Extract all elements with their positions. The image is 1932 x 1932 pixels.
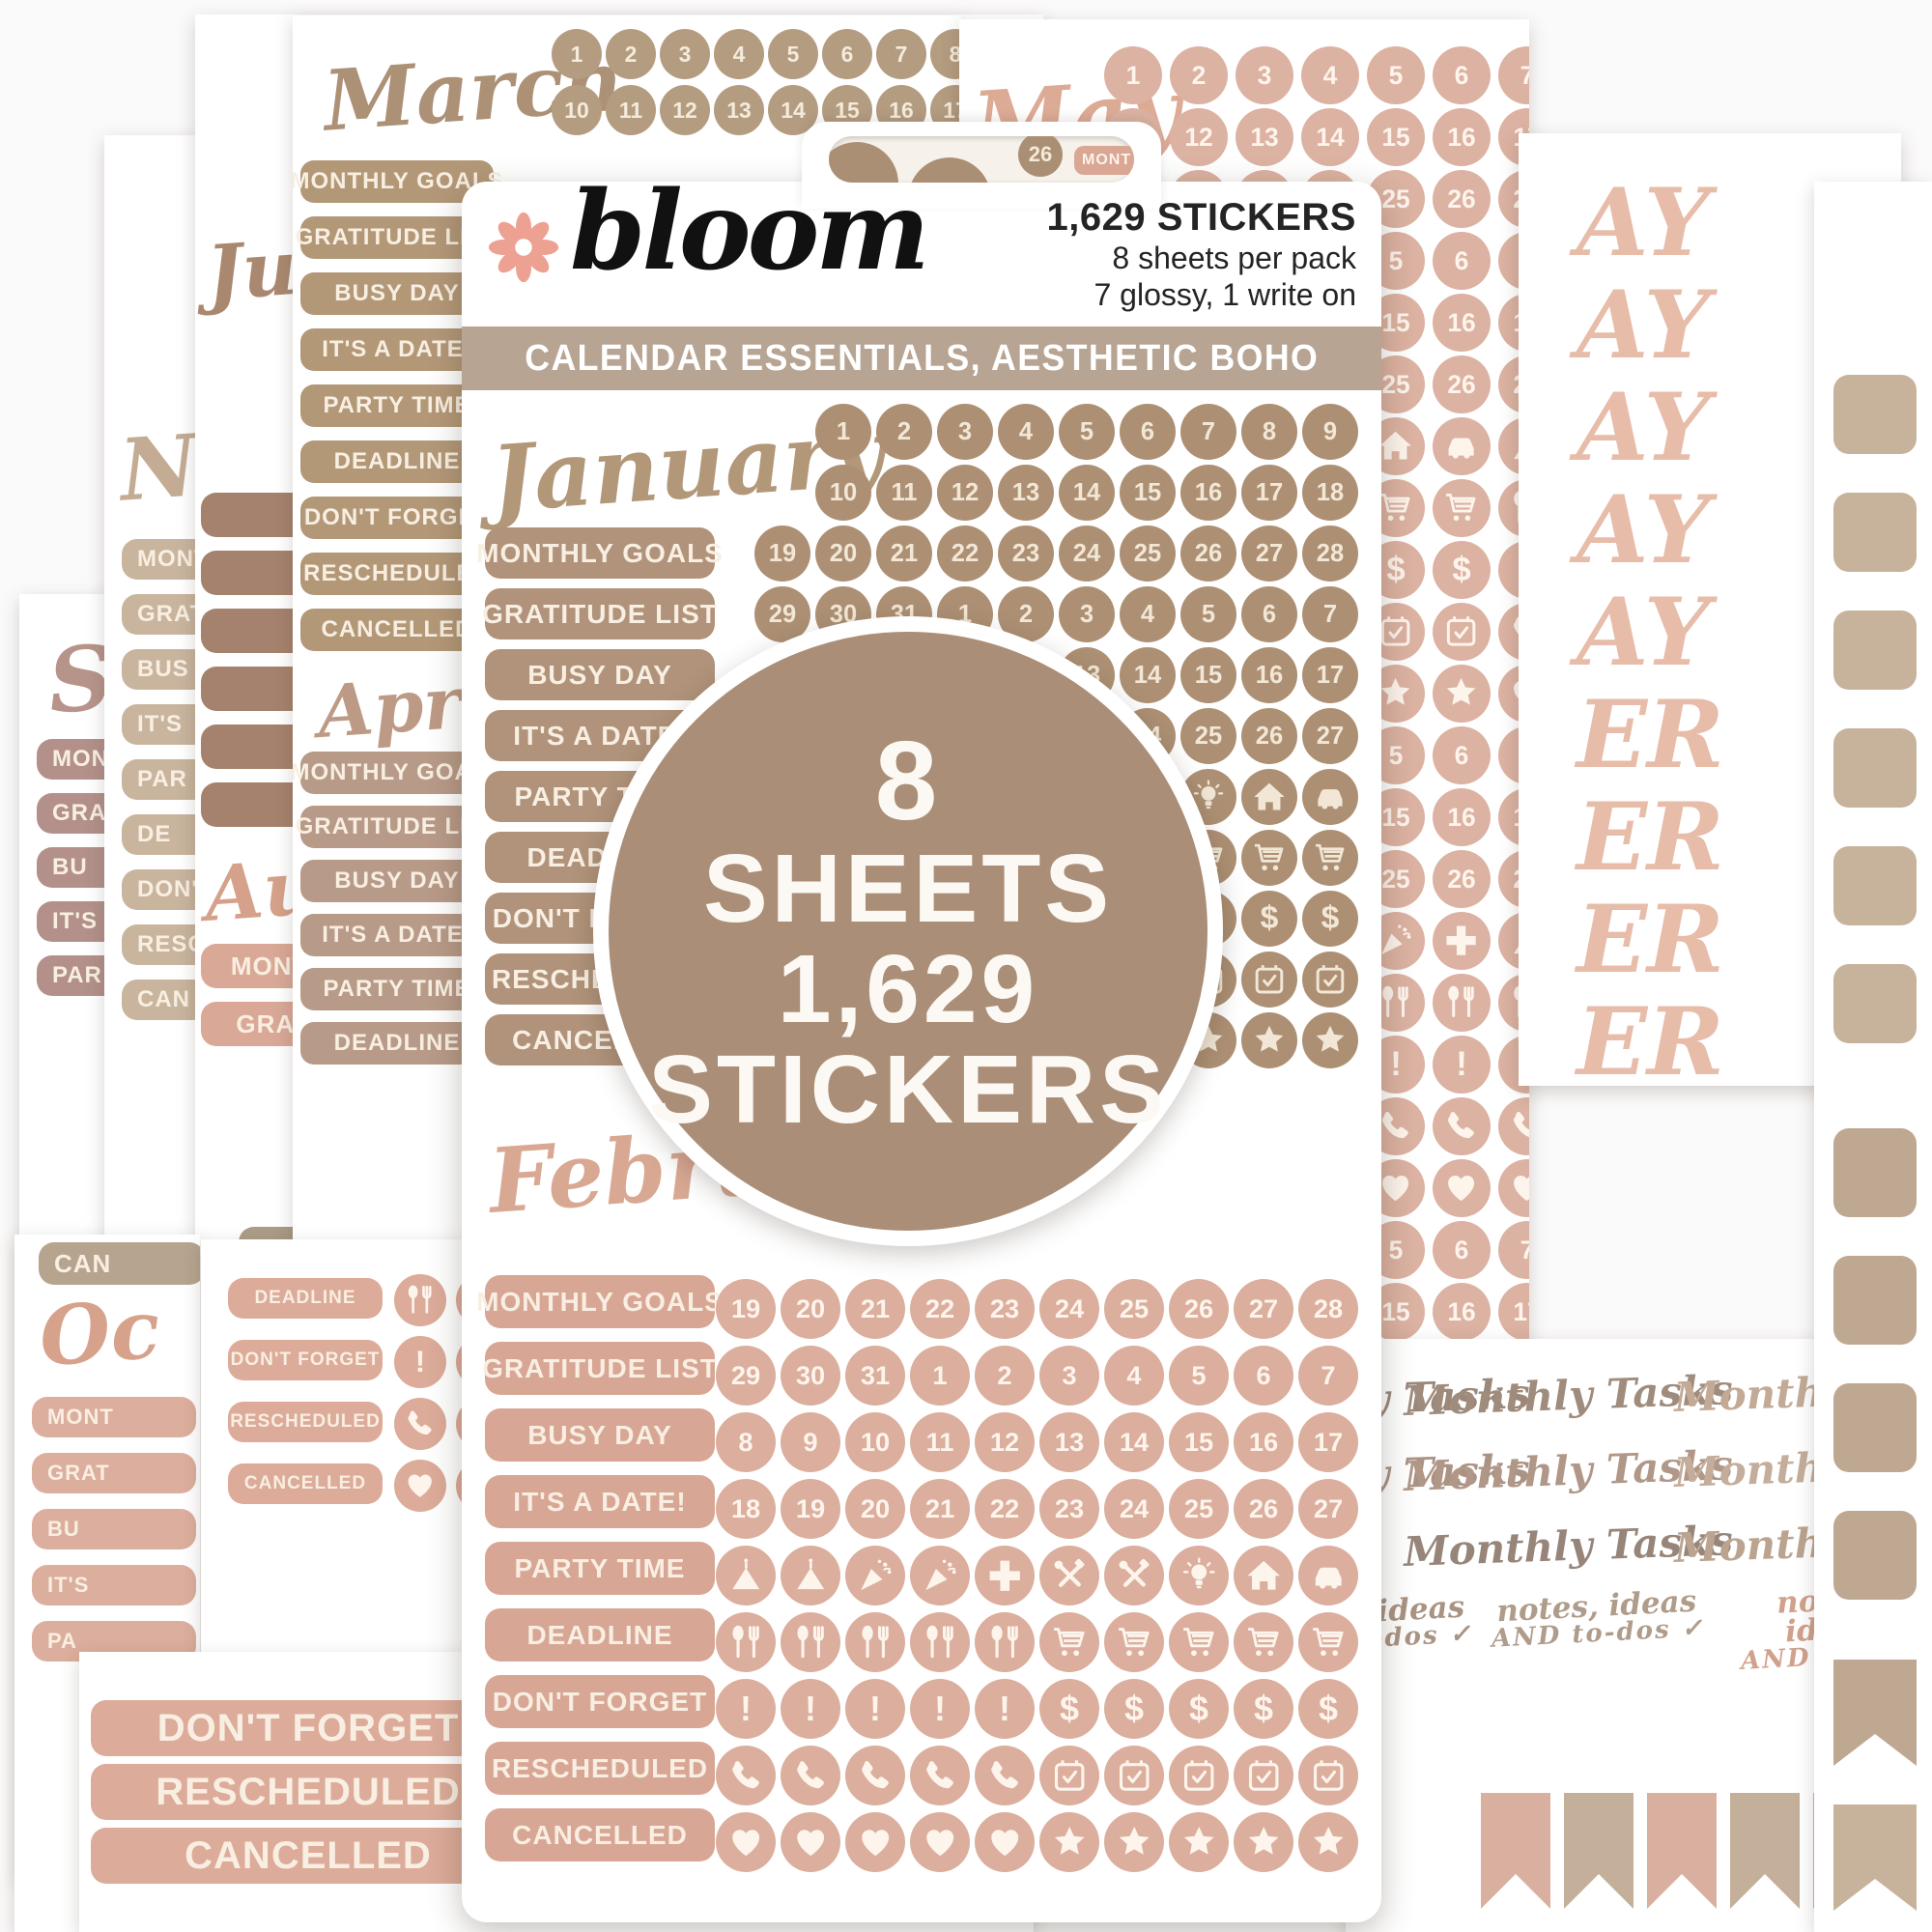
exclaim-icon: ! — [845, 1679, 905, 1739]
number-sticker: 6 — [1433, 232, 1491, 290]
package-card: 26 MONT bloom 1,629 STICKERS 8 sheets pe… — [462, 182, 1381, 1922]
number-sticker: 25 — [1169, 1479, 1229, 1539]
number-sticker: 7 — [1298, 1346, 1358, 1406]
october-mini-labels: DEADLINEDON'T FORGETRESCHEDULEDCANCELLED — [228, 1278, 383, 1525]
label-sticker: DON'T FORGET — [228, 1340, 383, 1380]
sheet-write-on — [1814, 182, 1932, 1932]
cake-icon — [781, 1546, 840, 1605]
plus-icon — [975, 1546, 1035, 1605]
cart-icon — [1234, 1612, 1293, 1672]
number-sticker: 3 — [1236, 46, 1293, 104]
script-fragment: AY — [1577, 377, 1724, 479]
label-sticker: PARTY TIME — [485, 1542, 715, 1595]
number-sticker: 20 — [781, 1279, 840, 1339]
tools-icon — [1039, 1546, 1099, 1605]
blank-square-sticker — [1833, 493, 1917, 572]
dollar-icon: $ — [1241, 891, 1297, 947]
label-sticker: RESCHEDULED — [228, 1402, 383, 1442]
weekday-script-fragments: AYAYAYAYAYERERERER — [1577, 172, 1724, 1086]
month-script-october: Oc — [37, 1281, 163, 1384]
number-sticker: 5 — [768, 29, 818, 79]
number-sticker: 21 — [910, 1479, 970, 1539]
calendar-icon — [1039, 1746, 1099, 1805]
label-sticker: RESCHEDULED — [485, 1742, 715, 1795]
number-sticker: 19 — [716, 1279, 776, 1339]
number-sticker: 13 — [1039, 1412, 1099, 1472]
exclaim-icon: ! — [716, 1679, 776, 1739]
dollar-icon: $ — [1433, 541, 1491, 599]
number-sticker: 30 — [781, 1346, 840, 1406]
label-sticker: MONTHLY GOALS — [485, 527, 715, 579]
number-sticker: 26 — [1241, 708, 1297, 764]
cake-icon — [716, 1546, 776, 1605]
number-sticker: 2 — [975, 1346, 1035, 1406]
number-sticker: 23 — [1039, 1479, 1099, 1539]
utensils-icon — [845, 1612, 905, 1672]
badge-line: STICKERS — [648, 1039, 1168, 1140]
october-cancelled-frag: CAN — [39, 1242, 200, 1285]
number-sticker: 22 — [937, 526, 993, 582]
number-sticker: 22 — [975, 1479, 1035, 1539]
february-labels: MONTHLY GOALSGRATITUDE LISTBUSY DAYIT'S … — [485, 1275, 715, 1875]
cart-icon — [1169, 1612, 1229, 1672]
month-script-july: Ju — [204, 224, 300, 318]
number-sticker: 25 — [1104, 1279, 1164, 1339]
number-sticker: 4 — [1301, 46, 1359, 104]
number-sticker: 16 — [1433, 1283, 1491, 1341]
heart-icon — [845, 1812, 905, 1872]
plus-icon — [1433, 912, 1491, 970]
number-sticker: 26 — [1433, 170, 1491, 228]
cart-icon — [1302, 830, 1358, 886]
house-icon — [1241, 769, 1297, 825]
number-sticker: 10 — [845, 1412, 905, 1472]
badge-line: 8 — [875, 723, 942, 839]
number-sticker: 6 — [1433, 1221, 1491, 1279]
number-sticker: 27 — [1302, 708, 1358, 764]
label-sticker: CAN — [39, 1242, 200, 1285]
script-fragment: AY — [1577, 582, 1724, 684]
star-icon — [1302, 1012, 1358, 1068]
number-sticker: 4 — [1104, 1346, 1164, 1406]
number-sticker: 12 — [1170, 108, 1228, 166]
number-sticker: 4 — [714, 29, 764, 79]
number-sticker: 18 — [1302, 465, 1358, 521]
count-badge: 8 SHEETS 1,629 STICKERS — [593, 616, 1223, 1246]
number-sticker: 21 — [845, 1279, 905, 1339]
number-sticker: 4 — [1120, 586, 1176, 642]
number-sticker: 27 — [1234, 1279, 1293, 1339]
calendar-icon — [1169, 1746, 1229, 1805]
number-sticker: 14 — [1301, 108, 1359, 166]
script-fragment: ER — [1577, 991, 1724, 1086]
number-sticker: 16 — [1433, 108, 1491, 166]
number-sticker: 2 — [1170, 46, 1228, 104]
brand-logo: bloom — [570, 168, 926, 295]
number-sticker: 16 — [1433, 788, 1491, 846]
heart-icon — [781, 1812, 840, 1872]
number-sticker: 7 — [1302, 586, 1358, 642]
number-sticker: 3 — [1059, 586, 1115, 642]
utensils-icon — [716, 1612, 776, 1672]
utensils-icon — [975, 1612, 1035, 1672]
number-sticker: 25 — [1120, 526, 1176, 582]
number-sticker: 28 — [1298, 1279, 1358, 1339]
label-sticker: MONTHLY GOALS — [485, 1275, 715, 1328]
script-fragment: ER — [1577, 786, 1724, 889]
label-sticker: BU — [32, 1509, 196, 1549]
number-sticker: 8 — [1241, 404, 1297, 460]
number-sticker: 6 — [1120, 404, 1176, 460]
number-sticker: 10 — [552, 85, 602, 135]
number-sticker: 8 — [930, 29, 961, 79]
number-sticker: 15 — [1367, 108, 1425, 166]
calendar-icon — [1298, 1746, 1358, 1805]
number-sticker: 28 — [1302, 526, 1358, 582]
star-icon — [1039, 1812, 1099, 1872]
number-sticker: 17 — [1302, 647, 1358, 703]
number-sticker: 3 — [660, 29, 710, 79]
heart-icon — [975, 1812, 1035, 1872]
label-sticker: CANCELLED — [485, 1808, 715, 1861]
october-labels: MONTGRATBUIT'SPA — [32, 1397, 196, 1677]
blank-square-sticker — [1833, 611, 1917, 690]
number-sticker: 19 — [754, 526, 810, 582]
number-sticker: 20 — [845, 1479, 905, 1539]
number-sticker: 11 — [910, 1412, 970, 1472]
label-sticker: DON'T FORGET — [91, 1700, 526, 1756]
phone-icon — [910, 1746, 970, 1805]
number-sticker: 12 — [660, 85, 710, 135]
sticker-row — [716, 1546, 1358, 1605]
finish-info: 7 glossy, 1 write on — [1047, 277, 1356, 314]
house-icon — [1234, 1546, 1293, 1605]
sticker-row: 11121314151617181920 — [1104, 108, 1529, 166]
exclaim-icon: ! — [781, 1679, 840, 1739]
exclaim-icon: ! — [394, 1336, 446, 1388]
number-sticker: 26 — [1180, 526, 1236, 582]
sticker-row — [716, 1612, 1358, 1672]
blank-square-sticker — [1833, 1511, 1917, 1600]
number-sticker: 29 — [716, 1346, 776, 1406]
pennant-sticker — [1730, 1793, 1800, 1909]
number-sticker: 27 — [1241, 526, 1297, 582]
star-icon — [1104, 1812, 1164, 1872]
calendar-icon — [1302, 952, 1358, 1008]
cart-icon — [1433, 479, 1491, 537]
label-sticker: GRAT — [32, 1453, 196, 1493]
number-sticker: 5 — [1059, 404, 1115, 460]
number-sticker: 8 — [716, 1412, 776, 1472]
party-icon — [845, 1546, 905, 1605]
sticker-row: 19202122232425262728 — [754, 526, 1358, 582]
sticker-row — [716, 1812, 1358, 1872]
label-sticker: IT'S — [32, 1565, 196, 1605]
number-sticker: 26 — [1433, 850, 1491, 908]
label-sticker: CANCELLED — [91, 1828, 526, 1884]
cart-icon — [1241, 830, 1297, 886]
script-fragment: AY — [1577, 479, 1724, 582]
number-sticker: 18 — [716, 1479, 776, 1539]
phone-icon — [394, 1398, 446, 1450]
dollar-icon: $ — [1302, 891, 1358, 947]
number-sticker: 9 — [781, 1412, 840, 1472]
number-sticker: 12 — [937, 465, 993, 521]
title-banner: CALENDAR ESSENTIALS, AESTHETIC BOHO — [462, 327, 1381, 390]
calendar-icon — [1433, 603, 1491, 661]
party-icon — [910, 1546, 970, 1605]
star-icon — [1298, 1812, 1358, 1872]
cart-icon — [1039, 1612, 1099, 1672]
product-photo: { "brand": {"name": "bloom"}, "pack": { … — [0, 0, 1932, 1932]
number-sticker: 1 — [815, 404, 871, 460]
cart-icon — [1104, 1612, 1164, 1672]
bottom-pink-labels: DON'T FORGETRESCHEDULEDCANCELLED — [91, 1700, 526, 1891]
blank-square-sticker — [1833, 1256, 1917, 1345]
number-sticker: 25 — [1180, 708, 1236, 764]
number-sticker: 31 — [845, 1346, 905, 1406]
phone-icon — [975, 1746, 1035, 1805]
heart-icon — [1433, 1159, 1491, 1217]
banner-text: CALENDAR ESSENTIALS, AESTHETIC BOHO — [525, 338, 1319, 380]
number-sticker: 7 — [1498, 46, 1529, 104]
label-sticker: IT'S A DATE! — [485, 1475, 715, 1528]
label-sticker: DEADLINE — [485, 1608, 715, 1662]
sticker-row: 123456789 — [552, 29, 961, 79]
number-sticker: 1 — [1104, 46, 1162, 104]
phone-icon — [716, 1746, 776, 1805]
number-sticker: 24 — [1104, 1479, 1164, 1539]
label-sticker: MONT — [1074, 146, 1134, 175]
dollar-icon: $ — [1039, 1679, 1099, 1739]
utensils-icon — [781, 1612, 840, 1672]
phone-icon — [1433, 1097, 1491, 1155]
number-sticker: 17 — [1241, 465, 1297, 521]
car-icon — [1302, 769, 1358, 825]
number-sticker: 20 — [815, 526, 871, 582]
number-sticker: 26 — [1169, 1279, 1229, 1339]
number-sticker: 16 — [1241, 647, 1297, 703]
sticker-row: 123456789 — [815, 404, 1358, 460]
label-sticker: MONT — [32, 1397, 196, 1437]
heart-icon — [1498, 1159, 1529, 1217]
pennant-sticker — [1481, 1793, 1550, 1909]
number-sticker: 6 — [1234, 1346, 1293, 1406]
number-sticker: 14 — [1059, 465, 1115, 521]
sticker-row: !!!!!$$$$$ — [716, 1679, 1358, 1739]
flower-icon — [487, 211, 560, 284]
star-icon — [1234, 1812, 1293, 1872]
car-icon — [1298, 1546, 1358, 1605]
phone-icon — [781, 1746, 840, 1805]
label-sticker: DON'T FORGET — [485, 1675, 715, 1728]
sticker-row: 101112131415161718 — [815, 465, 1358, 521]
number-sticker: 15 — [1180, 647, 1236, 703]
number-sticker: 16 — [1180, 465, 1236, 521]
sticker-row: 12345678910 — [1104, 46, 1529, 104]
calendar-icon — [1104, 1746, 1164, 1805]
utensils-icon — [394, 1274, 446, 1326]
number-sticker: 13 — [998, 465, 1054, 521]
number-sticker: 24 — [1059, 526, 1115, 582]
number-sticker: 26 — [1234, 1479, 1293, 1539]
star-icon — [1169, 1812, 1229, 1872]
sheets-per-pack: 8 sheets per pack — [1047, 241, 1356, 277]
utensils-icon — [910, 1612, 970, 1672]
number-sticker: 26 — [1018, 136, 1063, 177]
february-sticker-grid: 1920212223242526272829303112345678910111… — [716, 1279, 1358, 1879]
number-sticker: 15 — [1120, 465, 1176, 521]
number-sticker: 6 — [1433, 726, 1491, 784]
pennant-sticker — [1564, 1793, 1634, 1909]
number-sticker: 11 — [606, 85, 656, 135]
blank-square-sticker — [1833, 964, 1917, 1043]
number-sticker: 2 — [606, 29, 656, 79]
pennant-sticker — [1833, 1804, 1917, 1911]
label-sticker: DEADLINE — [228, 1278, 383, 1319]
sheet-october-labels: DEADLINEDON'T FORGETRESCHEDULEDCANCELLED… — [201, 1239, 487, 1666]
number-sticker: 24 — [1039, 1279, 1099, 1339]
sticker-count: 1,629 STICKERS — [1047, 195, 1356, 241]
number-sticker: 22 — [910, 1279, 970, 1339]
utensils-icon — [1433, 974, 1491, 1032]
number-sticker: 5 — [1180, 586, 1236, 642]
number-sticker: 3 — [937, 404, 993, 460]
cart-icon — [1298, 1612, 1358, 1672]
script-fragment: AY — [1577, 172, 1724, 274]
number-sticker: 27 — [1298, 1479, 1358, 1539]
star-icon — [1241, 1012, 1297, 1068]
number-sticker: 7 — [876, 29, 926, 79]
number-sticker: 5 — [1169, 1346, 1229, 1406]
number-sticker: 17 — [1298, 1412, 1358, 1472]
number-sticker: 13 — [714, 85, 764, 135]
calendar-icon — [1234, 1746, 1293, 1805]
number-sticker: 21 — [876, 526, 932, 582]
dollar-icon: $ — [1234, 1679, 1293, 1739]
number-sticker: 11 — [876, 465, 932, 521]
number-sticker: 23 — [998, 526, 1054, 582]
number-sticker: 6 — [1241, 586, 1297, 642]
number-sticker: 19 — [781, 1479, 840, 1539]
dollar-icon: $ — [1169, 1679, 1229, 1739]
label-sticker: GRATITUDE LIST — [485, 1342, 715, 1395]
blank-square-sticker — [1833, 1383, 1917, 1472]
script-fragment: AY — [1577, 274, 1724, 377]
blank-square-sticker — [1833, 1128, 1917, 1217]
number-sticker: 14 — [1120, 647, 1176, 703]
number-sticker: 5 — [1367, 46, 1425, 104]
number-sticker: 13 — [1236, 108, 1293, 166]
sticker-row: 18192021222324252627 — [716, 1479, 1358, 1539]
pack-info: 1,629 STICKERS 8 sheets per pack 7 gloss… — [1047, 195, 1356, 314]
heart-icon — [910, 1812, 970, 1872]
star-icon — [1433, 665, 1491, 723]
phone-icon — [1498, 1097, 1529, 1155]
tools-icon — [1104, 1546, 1164, 1605]
number-sticker: 17 — [1498, 1283, 1529, 1341]
label-sticker: RESCHEDULED — [91, 1764, 526, 1820]
number-sticker: 7 — [1498, 1221, 1529, 1279]
dollar-icon: $ — [1298, 1679, 1358, 1739]
phone-icon — [845, 1746, 905, 1805]
heart-icon — [394, 1460, 446, 1512]
calendar-icon — [1241, 952, 1297, 1008]
script-fragment: ER — [1577, 889, 1724, 991]
number-sticker: 1 — [552, 29, 602, 79]
number-sticker: 7 — [1180, 404, 1236, 460]
number-sticker: 6 — [822, 29, 872, 79]
exclaim-icon: ! — [1433, 1036, 1491, 1094]
dollar-icon: $ — [1104, 1679, 1164, 1739]
pennant-sticker — [1833, 1660, 1917, 1766]
number-sticker: 16 — [1433, 294, 1491, 352]
car-icon — [1433, 417, 1491, 475]
badge-line: SHEETS — [703, 838, 1113, 939]
label-sticker: CANCELLED — [228, 1463, 383, 1504]
sticker-row: 2930311234567 — [716, 1346, 1358, 1406]
sticker-row: 19202122232425262728 — [716, 1279, 1358, 1339]
sticker-row — [716, 1746, 1358, 1805]
label-sticker: GRATITUDE LIST — [485, 588, 715, 639]
blank-square-sticker — [1833, 846, 1917, 925]
label-sticker: BUSY DAY — [485, 649, 715, 700]
number-sticker: 4 — [998, 404, 1054, 460]
heart-icon — [716, 1812, 776, 1872]
number-sticker: 15 — [1169, 1412, 1229, 1472]
number-sticker: 9 — [1302, 404, 1358, 460]
exclaim-icon: ! — [975, 1679, 1035, 1739]
number-sticker: 1 — [910, 1346, 970, 1406]
number-sticker: 14 — [1104, 1412, 1164, 1472]
exclaim-icon: ! — [910, 1679, 970, 1739]
pennant-sticker — [1647, 1793, 1717, 1909]
label-sticker: BUSY DAY — [485, 1408, 715, 1462]
number-sticker: 6 — [1433, 46, 1491, 104]
number-sticker: 23 — [975, 1279, 1035, 1339]
sticker-row: 891011121314151617 — [716, 1412, 1358, 1472]
number-sticker: 16 — [1234, 1412, 1293, 1472]
number-sticker: 2 — [876, 404, 932, 460]
script-fragment: ER — [1577, 684, 1724, 786]
number-sticker: 3 — [1039, 1346, 1099, 1406]
bulb-icon — [1169, 1546, 1229, 1605]
badge-line: 1,629 — [778, 939, 1038, 1039]
number-sticker: 12 — [975, 1412, 1035, 1472]
blank-square-sticker — [1833, 728, 1917, 808]
notes-ideas-script: notes, ideas AND to-dos ✓ — [1490, 1586, 1705, 1651]
blank-square-sticker — [1833, 375, 1917, 454]
number-sticker: 10 — [815, 465, 871, 521]
number-sticker: 26 — [1433, 355, 1491, 413]
